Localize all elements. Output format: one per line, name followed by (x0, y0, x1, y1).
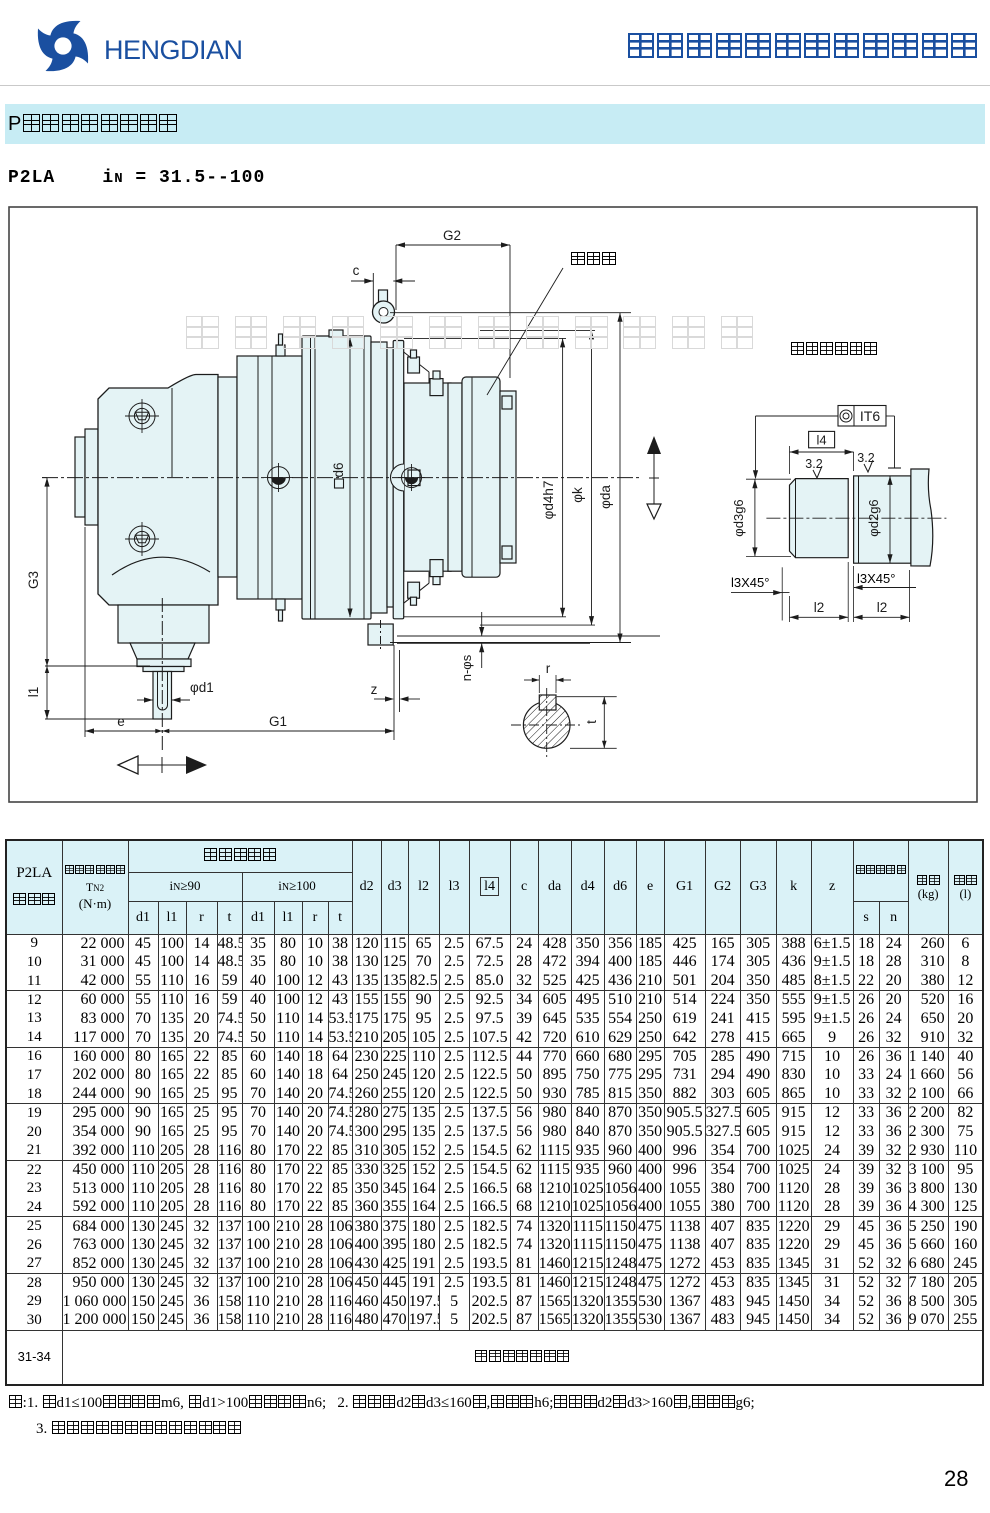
svg-text:e: e (117, 714, 125, 729)
svg-text:z: z (371, 682, 378, 697)
svg-text:G1: G1 (269, 714, 287, 729)
svg-text:l2: l2 (814, 600, 825, 615)
svg-text:r: r (546, 661, 551, 676)
svg-text:φd1: φd1 (190, 680, 214, 695)
svg-text:G2: G2 (443, 228, 461, 243)
svg-text:l4: l4 (817, 433, 827, 448)
svg-text:φd2g6: φd2g6 (866, 499, 881, 536)
svg-text:φk: φk (570, 487, 585, 503)
svg-text:d6: d6 (331, 462, 346, 477)
svg-text:c: c (353, 263, 360, 278)
svg-text:φda: φda (598, 485, 613, 509)
svg-text:3.2: 3.2 (805, 457, 822, 471)
svg-text:l1: l1 (26, 687, 41, 698)
svg-text:IT6: IT6 (860, 408, 880, 424)
svg-text:t: t (584, 720, 599, 724)
svg-text:n-φs: n-φs (459, 654, 474, 681)
svg-text:φd4h7: φd4h7 (541, 481, 556, 520)
svg-text:G3: G3 (26, 571, 41, 589)
svg-text:φd3g6: φd3g6 (731, 499, 746, 536)
svg-text:l2: l2 (877, 600, 888, 615)
